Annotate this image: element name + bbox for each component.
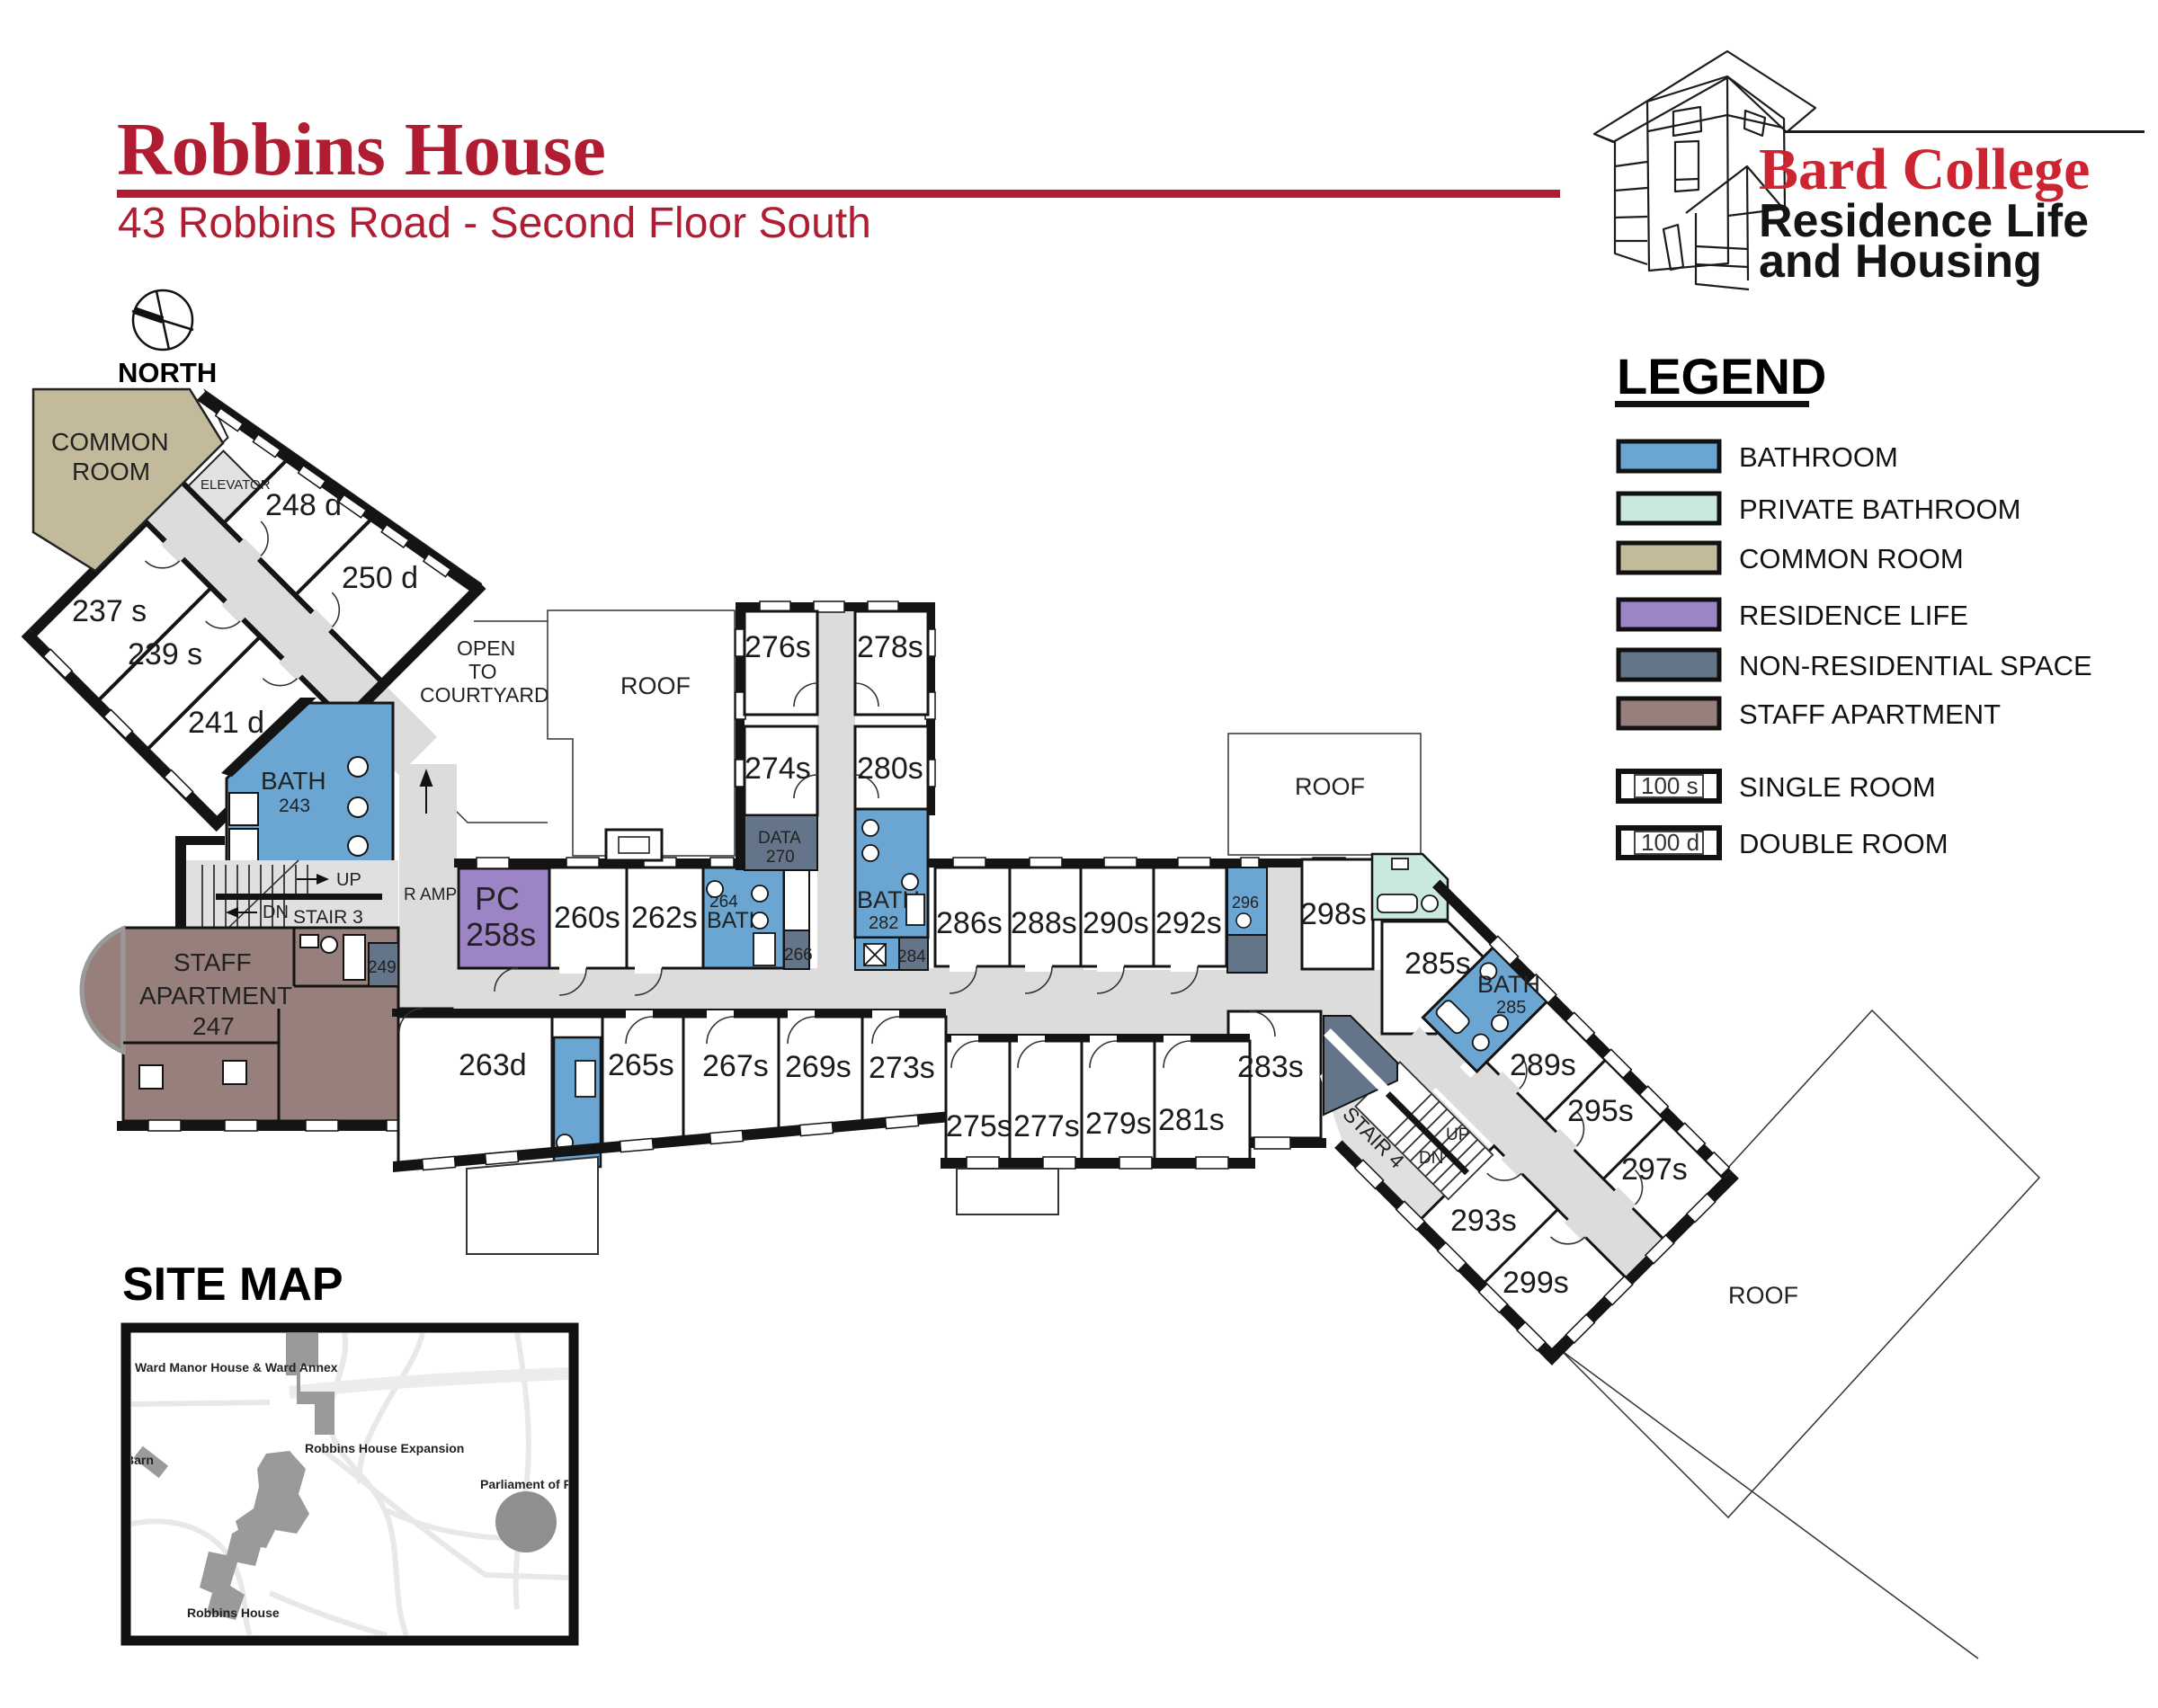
svg-text:NON-RESIDENTIAL SPACE: NON-RESIDENTIAL SPACE	[1739, 650, 2092, 681]
svg-text:NORTH: NORTH	[118, 357, 217, 388]
svg-text:STAIR 3: STAIR 3	[293, 907, 363, 928]
svg-text:269s: 269s	[785, 1050, 852, 1084]
svg-text:DN: DN	[1419, 1149, 1443, 1168]
svg-text:282: 282	[869, 913, 898, 933]
svg-text:285: 285	[1496, 998, 1526, 1018]
svg-text:250 d: 250 d	[342, 561, 418, 595]
svg-text:286s: 286s	[936, 906, 1003, 940]
svg-text:296: 296	[1232, 894, 1259, 912]
svg-text:PC: PC	[475, 880, 520, 917]
svg-text:100 d: 100 d	[1641, 829, 1699, 856]
svg-text:292s: 292s	[1155, 906, 1222, 940]
svg-text:290s: 290s	[1083, 906, 1149, 940]
svg-text:248 d: 248 d	[265, 488, 342, 522]
svg-text:SITE MAP: SITE MAP	[122, 1259, 343, 1311]
svg-text:241 d: 241 d	[188, 706, 264, 740]
svg-text:293s: 293s	[1450, 1204, 1517, 1238]
svg-text:APARTMENT: APARTMENT	[139, 982, 292, 1010]
svg-text:RESIDENCE LIFE: RESIDENCE LIFE	[1739, 600, 1968, 631]
svg-text:277s: 277s	[1013, 1109, 1080, 1143]
svg-text:Robbins House: Robbins House	[187, 1606, 280, 1620]
svg-text:275s: 275s	[946, 1109, 1012, 1143]
svg-text:249: 249	[368, 958, 397, 977]
svg-text:266: 266	[784, 946, 813, 965]
svg-text:COMMON ROOM: COMMON ROOM	[1739, 543, 1964, 574]
svg-text:COURTYARD: COURTYARD	[420, 683, 549, 707]
svg-text:TO: TO	[468, 660, 497, 683]
svg-text:281s: 281s	[1158, 1103, 1225, 1137]
svg-text:R AMP: R AMP	[404, 885, 457, 904]
svg-text:UP: UP	[1446, 1125, 1469, 1144]
svg-text:43 Robbins Road - Second Floor: 43 Robbins Road - Second Floor South	[118, 200, 871, 247]
svg-text:SINGLE ROOM: SINGLE ROOM	[1739, 771, 1936, 803]
svg-text:STAFF: STAFF	[174, 948, 252, 976]
svg-text:DN: DN	[263, 903, 289, 922]
svg-text:237 s: 237 s	[72, 594, 147, 628]
svg-text:270: 270	[766, 848, 795, 867]
svg-text:and Housing: and Housing	[1759, 236, 2042, 288]
svg-text:ROOF: ROOF	[1295, 773, 1365, 800]
svg-text:283s: 283s	[1237, 1050, 1304, 1084]
svg-text:BATH: BATH	[1477, 971, 1540, 998]
svg-text:ROOF: ROOF	[1728, 1282, 1798, 1309]
svg-text:OPEN: OPEN	[457, 636, 515, 660]
svg-text:280s: 280s	[857, 752, 923, 786]
svg-text:DOUBLE ROOM: DOUBLE ROOM	[1739, 828, 1948, 859]
svg-text:265s: 265s	[608, 1048, 674, 1082]
svg-text:ROOF: ROOF	[620, 672, 691, 699]
svg-text:274s: 274s	[745, 752, 811, 786]
svg-text:285s: 285s	[1404, 947, 1471, 981]
svg-text:239 s: 239 s	[128, 637, 202, 672]
svg-text:289s: 289s	[1510, 1048, 1576, 1082]
svg-text:278s: 278s	[857, 630, 923, 664]
svg-text:Robbins House Expansion: Robbins House Expansion	[305, 1441, 464, 1455]
svg-text:273s: 273s	[869, 1051, 935, 1085]
svg-text:288s: 288s	[1011, 906, 1077, 940]
svg-text:279s: 279s	[1085, 1107, 1152, 1141]
svg-text:263d: 263d	[459, 1048, 527, 1082]
svg-text:COMMON: COMMON	[51, 428, 169, 456]
svg-text:243: 243	[279, 796, 310, 816]
svg-text:284: 284	[897, 947, 926, 966]
svg-text:299s: 299s	[1503, 1266, 1569, 1300]
svg-text:298s: 298s	[1300, 897, 1367, 931]
svg-text:ROOM: ROOM	[72, 458, 150, 485]
svg-text:UP: UP	[336, 870, 361, 890]
svg-text:BATH: BATH	[261, 767, 326, 795]
svg-text:DATA: DATA	[758, 829, 801, 848]
svg-text:BATHROOM: BATHROOM	[1739, 441, 1898, 473]
svg-text:100 s: 100 s	[1641, 772, 1699, 799]
svg-text:PRIVATE BATHROOM: PRIVATE BATHROOM	[1739, 494, 2020, 525]
svg-text:ELEVATOR: ELEVATOR	[201, 477, 271, 493]
svg-text:262s: 262s	[631, 901, 698, 935]
svg-text:297s: 297s	[1621, 1152, 1688, 1187]
svg-text:276s: 276s	[745, 630, 811, 664]
svg-text:LEGEND: LEGEND	[1617, 348, 1826, 405]
svg-text:258s: 258s	[466, 916, 536, 953]
svg-text:Bard College: Bard College	[1759, 137, 2090, 202]
svg-text:STAFF APARTMENT: STAFF APARTMENT	[1739, 698, 2001, 730]
svg-text:Ward Manor House & Ward Annex: Ward Manor House & Ward Annex	[135, 1360, 338, 1374]
svg-text:247: 247	[192, 1012, 235, 1040]
svg-text:267s: 267s	[702, 1049, 769, 1083]
svg-text:Robbins House: Robbins House	[117, 108, 606, 191]
svg-text:260s: 260s	[554, 901, 620, 935]
svg-text:295s: 295s	[1567, 1094, 1634, 1128]
